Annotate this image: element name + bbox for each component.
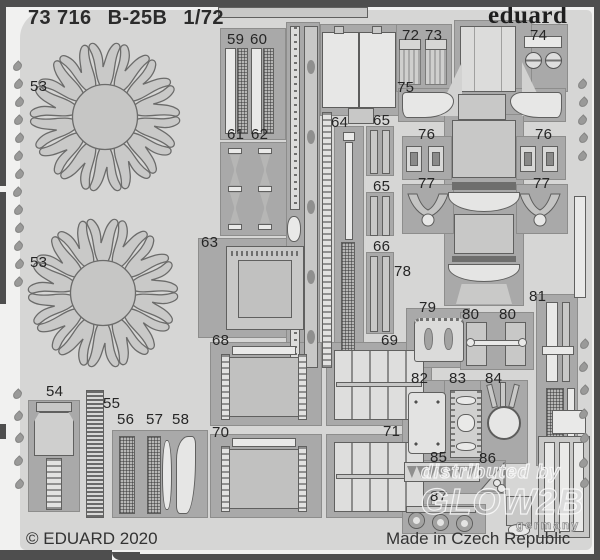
pe-part [322,112,332,368]
pe-part [228,449,300,509]
pe-part [428,146,444,172]
part-number-label: 69 [381,332,398,349]
pe-part [334,26,344,34]
part-number-label: 56 [117,411,134,428]
product-photo-pe-fret: 73 716B-25B1/72 eduard © EDUARD 2020 Mad… [0,0,600,560]
frame-bottom-left [0,550,112,560]
pe-part [238,260,292,318]
frame-left-nub [0,424,6,439]
part-number-label: 79 [419,299,436,316]
pe-part [452,120,516,178]
part-number-label: 66 [373,238,390,255]
pe-part [452,256,516,262]
fret-title: 73 716B-25B1/72 [28,7,240,30]
part-53-cowl-flap-fan [27,217,179,369]
part-number-label: 70 [212,424,229,441]
pe-part [86,390,104,518]
part-53-cowl-flap-fan [29,41,181,193]
pe-part [298,354,307,420]
part-number-label: 58 [172,411,189,428]
pe-part [162,440,172,510]
pe-part [506,496,532,526]
pe-part [119,436,135,514]
frame-top [0,0,600,7]
part-number-label: 77 [418,175,435,192]
part-number-label: 86 [479,450,496,467]
part-number-label: 72 [402,27,419,44]
pe-part [370,196,378,236]
pe-part [408,512,425,529]
pe-part [263,48,274,134]
part-number-label: 78 [394,263,411,280]
catalog-number: 73 716 [28,7,92,29]
part-number-label: 73 [425,27,442,44]
pe-part [370,256,378,332]
part-62-truss [258,148,274,232]
part-77-yoke [406,192,450,228]
copyright-text: © EDUARD 2020 [26,529,158,549]
pe-part [518,338,527,347]
pe-part [559,442,570,532]
part-number-label: 83 [449,370,466,387]
pe-part [46,458,62,510]
pe-part [307,200,315,214]
pe-part [497,484,506,493]
pe-part [460,26,516,92]
pe-part [525,52,542,69]
pe-part [225,48,236,134]
part-77-yoke [518,192,562,228]
pe-part [36,402,72,412]
pe-part [341,242,355,362]
pe-part [231,251,299,256]
part-number-label: 53 [30,78,47,95]
pe-part [290,26,300,210]
pe-part [221,354,230,420]
part-number-label: 60 [250,31,267,48]
pe-part [414,318,464,362]
part-number-label: 53 [30,254,47,271]
pe-part [408,392,446,454]
pe-part [470,340,522,346]
pe-part [545,52,562,69]
pe-part [251,48,262,134]
pe-part [457,414,475,432]
pe-part [307,60,315,74]
part-61-truss [228,148,244,232]
pe-part [487,406,521,440]
pe-part [147,436,161,514]
pe-part [520,146,536,172]
pe-part [232,346,296,355]
pe-part [544,442,555,532]
part-number-label: 85 [430,449,447,466]
frame-left-upper [0,0,6,186]
pe-part [228,357,300,417]
part-number-label: 76 [418,126,435,143]
scale: 1/72 [183,7,224,29]
pe-part [542,146,558,172]
pe-part [574,196,586,298]
part-number-label: 64 [331,114,348,131]
part-number-label: 65 [373,178,390,195]
part-number-label: 74 [530,27,547,44]
kit-name: B-25B [108,7,168,29]
pe-part [424,328,433,350]
pe-part [406,146,422,172]
pe-part [562,302,570,382]
part-number-label: 76 [535,126,552,143]
pe-part [382,256,390,332]
part-number-label: 87 [430,488,447,505]
part-number-label: 84 [485,370,502,387]
pe-part [400,40,420,84]
part-number-label: 55 [103,395,120,412]
pe-part [454,214,514,254]
pe-part [287,216,301,242]
part-number-label: 75 [397,79,414,96]
part-number-label: 81 [529,288,546,305]
pe-part [370,130,378,174]
pe-part [343,132,355,141]
pe-part [382,196,390,236]
pe-part [452,182,516,190]
frame-bottom-step [112,552,140,560]
pe-part [382,130,390,174]
pe-part [237,48,248,134]
frame-bottom-right [140,554,600,560]
pe-part [458,94,506,120]
pe-part [304,26,318,368]
part-number-label: 71 [383,423,400,440]
pe-part [307,130,315,144]
pe-part [221,446,230,512]
pe-part [345,142,353,240]
frame-left-lower [0,192,6,304]
made-in-text: Made in Czech Republic [386,529,570,549]
pe-part [307,330,315,344]
pe-part [322,32,396,108]
part-number-label: 61 [227,126,244,143]
pe-part [444,328,453,350]
pe-part [456,442,476,451]
part-number-label: 65 [373,112,390,129]
part-number-label: 63 [201,234,218,251]
pe-part [466,338,475,347]
pe-part [307,270,315,284]
pe-part [372,26,382,34]
part-number-label: 77 [533,175,550,192]
pe-part [456,396,476,405]
part-number-label: 57 [146,411,163,428]
pe-part [426,40,446,84]
pe-part [34,412,74,456]
part-number-label: 62 [251,126,268,143]
pe-part [218,7,368,18]
pe-part [348,108,374,124]
frame-right [594,6,600,554]
part-number-label: 54 [46,383,63,400]
pe-part [542,346,574,355]
part-number-label: 82 [411,370,428,387]
part-number-label: 80 [462,306,479,323]
pe-part [298,446,307,512]
pe-part [232,438,296,447]
pe-part [336,382,422,387]
part-number-label: 80 [499,306,516,323]
pe-part [546,302,558,382]
pe-part [456,284,512,304]
part-number-label: 59 [227,31,244,48]
part-number-label: 68 [212,332,229,349]
